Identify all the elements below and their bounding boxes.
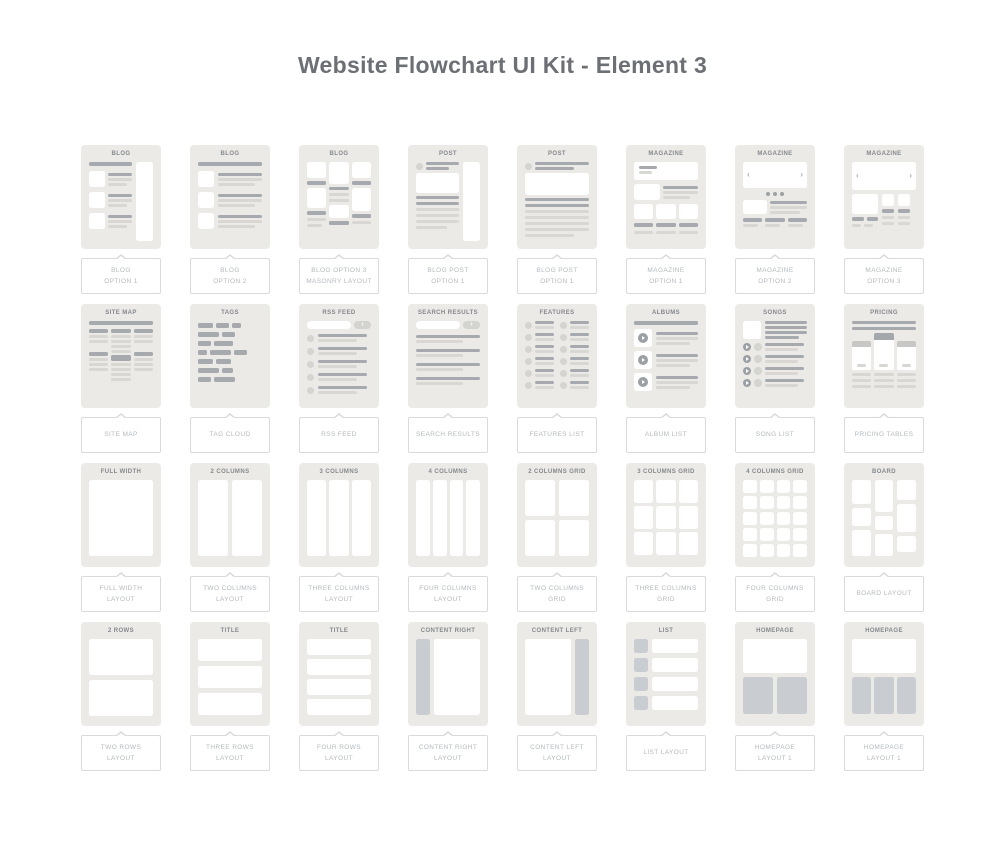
card-homepage-layout-1-a: HOMEPAGE HOMEPAGE LAYOUT 1 (735, 622, 815, 771)
card-label-text: FULL WIDTH LAYOUT (100, 583, 143, 605)
thumbnail-title: ALBUMS (634, 304, 698, 321)
card-full-width-layout: FULL WIDTH FULL WIDTH LAYOUT (81, 463, 161, 612)
arrow-button-icon: › (463, 321, 480, 329)
thumbnail-title: PRICING (852, 304, 916, 321)
wireframe-graphic (198, 639, 262, 718)
play-icon (638, 377, 648, 387)
card-four-columns-layout: 4 COLUMNS FOUR COLUMNS LAYOUT (408, 463, 488, 612)
carousel-dots (743, 192, 807, 196)
wireframe-graphic: › (416, 321, 480, 400)
wireframe-graphic (743, 480, 807, 559)
card-content-left-layout: CONTENT LEFT CONTENT LEFT LAYOUT (517, 622, 597, 771)
wireframe-thumbnail: ALBUMS (626, 304, 706, 408)
wireframe-thumbnail: MAGAZINE ‹› (735, 145, 815, 249)
thumbnail-title: RSS FEED (307, 304, 371, 321)
wireframe-thumbnail: BLOG (299, 145, 379, 249)
card-label: SONG LIST (735, 417, 815, 453)
card-two-columns-grid: 2 COLUMNS GRID TWO COLUMNS GRID (517, 463, 597, 612)
wireframe-graphic (416, 639, 480, 718)
card-blog-post-option-1-full: POST BLOG POST OPTION 1 (517, 145, 597, 294)
card-label-text: PRICING TABLES (855, 429, 914, 440)
card-blog-post-option-1-sidebar: POST BLOG POST OPTION 1 (408, 145, 488, 294)
play-icon (638, 355, 648, 365)
card-magazine-option-1: MAGAZINE MAGAZINE OPTION 1 (626, 145, 706, 294)
card-label: FEATURES LIST (517, 417, 597, 453)
wireframe-thumbnail: SITE MAP (81, 304, 161, 408)
card-two-columns-layout: 2 COLUMNS TWO COLUMNS LAYOUT (190, 463, 270, 612)
card-label-text: ALBUM LIST (645, 429, 687, 440)
card-label: RSS FEED (299, 417, 379, 453)
thumbnail-title: TAGS (198, 304, 262, 321)
avatar (416, 163, 423, 170)
wireframe-graphic (634, 162, 698, 241)
thumbnail-title: BOARD (852, 463, 916, 480)
wireframe-thumbnail: POST (408, 145, 488, 249)
card-label-text: SEARCH RESULTS (416, 429, 480, 440)
card-label: BLOG POST OPTION 1 (517, 258, 597, 294)
thumbnail-title: FEATURES (525, 304, 589, 321)
card-label: TWO ROWS LAYOUT (81, 735, 161, 771)
card-three-columns-grid: 3 COLUMNS GRID THREE COLUMNS GRID (626, 463, 706, 612)
thumbnail-title: BLOG (198, 145, 262, 162)
card-label: HOMEPAGE LAYOUT 1 (735, 735, 815, 771)
card-label-text: BLOG OPTION 3 MASONRY LAYOUT (306, 265, 372, 287)
wireframe-graphic (525, 480, 589, 559)
card-label-text: MAGAZINE OPTION 1 (647, 265, 684, 287)
thumbnail-title: 4 COLUMNS (416, 463, 480, 480)
card-label-text: CONTENT RIGHT LAYOUT (419, 742, 478, 764)
card-label: BLOG OPTION 2 (190, 258, 270, 294)
wireframe-graphic (198, 321, 262, 402)
wireframe-thumbnail: HOMEPAGE (735, 622, 815, 726)
thumbnail-title: 2 COLUMNS GRID (525, 463, 589, 480)
card-label-text: BLOG OPTION 1 (104, 265, 138, 287)
wireframe-graphic (525, 162, 589, 241)
wireframe-thumbnail: SEARCH RESULTS › (408, 304, 488, 408)
wireframe-thumbnail: 2 COLUMNS (190, 463, 270, 567)
card-label: FOUR COLUMNS GRID (735, 576, 815, 612)
card-board-layout: BOARD BOARD LAYOUT (844, 463, 924, 612)
card-song-list: SONGS SONG LIST (735, 304, 815, 453)
wireframe-thumbnail: TITLE (190, 622, 270, 726)
card-label-text: FOUR COLUMNS GRID (746, 583, 804, 605)
thumbnail-title: SITE MAP (89, 304, 153, 321)
thumbnail-title: MAGAZINE (743, 145, 807, 162)
thumbnail-title: 2 COLUMNS (198, 463, 262, 480)
card-homepage-layout-1-b: HOMEPAGE HOMEPAGE LAYOUT 1 (844, 622, 924, 771)
card-label: CONTENT RIGHT LAYOUT (408, 735, 488, 771)
wireframe-thumbnail: MAGAZINE ‹› (844, 145, 924, 249)
wireframe-thumbnail: BLOG (81, 145, 161, 249)
wireframe-thumbnail: BOARD (844, 463, 924, 567)
card-label-text: TWO ROWS LAYOUT (101, 742, 141, 764)
chevron-right-icon: › (800, 171, 803, 179)
play-icon (638, 333, 648, 343)
card-label-text: TWO COLUMNS LAYOUT (203, 583, 257, 605)
play-icon (743, 367, 751, 375)
thumbnail-title: CONTENT RIGHT (416, 622, 480, 639)
chevron-left-icon: ‹ (747, 171, 750, 179)
thumbnail-title: POST (416, 145, 480, 162)
wireframe-thumbnail: 4 COLUMNS (408, 463, 488, 567)
wireframe-thumbnail: 3 COLUMNS GRID (626, 463, 706, 567)
card-label: THREE COLUMNS GRID (626, 576, 706, 612)
card-label: BLOG OPTION 3 MASONRY LAYOUT (299, 258, 379, 294)
card-label-text: SITE MAP (104, 429, 138, 440)
wireframe-graphic (852, 639, 916, 718)
card-label: FOUR COLUMNS LAYOUT (408, 576, 488, 612)
card-list-layout: LIST LIST LAYOUT (626, 622, 706, 771)
wireframe-graphic (416, 162, 480, 241)
thumbnail-title: BLOG (307, 145, 371, 162)
card-label-text: THREE ROWS LAYOUT (206, 742, 254, 764)
search-input (416, 321, 460, 329)
card-label-text: HOMEPAGE LAYOUT 1 (864, 742, 904, 764)
card-label-text: LIST LAYOUT (643, 747, 688, 758)
wireframe-graphic (89, 162, 153, 241)
wireframe-thumbnail: POST (517, 145, 597, 249)
thumbnail-title: FULL WIDTH (89, 463, 153, 480)
chevron-right-icon: › (909, 172, 912, 180)
card-magazine-option-2: MAGAZINE ‹› MAGAZINE OPTION 2 (735, 145, 815, 294)
card-magazine-option-3: MAGAZINE ‹› MAGAZINE OPTION 3 (844, 145, 924, 294)
card-label: BLOG POST OPTION 1 (408, 258, 488, 294)
wireframe-thumbnail: 2 ROWS (81, 622, 161, 726)
card-label-text: BLOG POST OPTION 1 (427, 265, 468, 287)
card-label-text: FEATURES LIST (530, 429, 585, 440)
wireframe-graphic (89, 321, 153, 400)
card-label-text: THREE COLUMNS GRID (635, 583, 697, 605)
card-label: MAGAZINE OPTION 1 (626, 258, 706, 294)
wireframe-graphic (307, 480, 371, 559)
card-label: BLOG OPTION 1 (81, 258, 161, 294)
thumbnail-title: BLOG (89, 145, 153, 162)
card-label: MAGAZINE OPTION 3 (844, 258, 924, 294)
card-label: FULL WIDTH LAYOUT (81, 576, 161, 612)
thumbnail-title: 3 COLUMNS (307, 463, 371, 480)
card-label: LIST LAYOUT (626, 735, 706, 771)
wireframe-thumbnail: BLOG (190, 145, 270, 249)
thumbnail-title: LIST (634, 622, 698, 639)
play-icon (743, 379, 751, 387)
wireframe-graphic (307, 639, 371, 718)
card-two-rows-layout: 2 ROWS TWO ROWS LAYOUT (81, 622, 161, 771)
wireframe-graphic (416, 480, 480, 559)
wireframe-thumbnail: 2 COLUMNS GRID (517, 463, 597, 567)
card-label: TAG CLOUD (190, 417, 270, 453)
wireframe-graphic (743, 639, 807, 718)
wireframe-graphic (89, 480, 153, 559)
card-three-columns-layout: 3 COLUMNS THREE COLUMNS LAYOUT (299, 463, 379, 612)
wireframe-thumbnail: RSS FEED › (299, 304, 379, 408)
wireframe-graphic (852, 321, 916, 400)
card-label: CONTENT LEFT LAYOUT (517, 735, 597, 771)
search-input (307, 321, 351, 329)
wireframe-thumbnail: CONTENT LEFT (517, 622, 597, 726)
card-label-text: MAGAZINE OPTION 2 (756, 265, 793, 287)
wireframe-thumbnail: FEATURES (517, 304, 597, 408)
card-four-rows-layout: TITLE FOUR ROWS LAYOUT (299, 622, 379, 771)
wireframe-thumbnail: MAGAZINE (626, 145, 706, 249)
card-features-list: FEATURES FEATURES LIST (517, 304, 597, 453)
thumbnail-title: SEARCH RESULTS (416, 304, 480, 321)
wireframe-graphic (634, 321, 698, 400)
card-label-text: SONG LIST (756, 429, 794, 440)
card-album-list: ALBUMS ALBUM LIST (626, 304, 706, 453)
card-rss-feed: RSS FEED › RSS FEED (299, 304, 379, 453)
wireframe-thumbnail: CONTENT RIGHT (408, 622, 488, 726)
chevron-left-icon: ‹ (856, 172, 859, 180)
wireframe-graphic (852, 480, 916, 559)
card-pricing-tables: PRICING PRICING TABLES (844, 304, 924, 453)
card-label-text: FOUR COLUMNS LAYOUT (419, 583, 477, 605)
card-label: BOARD LAYOUT (844, 576, 924, 612)
wireframe-graphic (525, 639, 589, 718)
card-four-columns-grid: 4 COLUMNS GRID FOUR COLUMNS GRID (735, 463, 815, 612)
wireframe-thumbnail: LIST (626, 622, 706, 726)
wireframe-graphic (634, 480, 698, 559)
card-blog-option-3-masonry: BLOG BLOG OPTION 3 MASONRY LAYOUT (299, 145, 379, 294)
wireframe-graphic: ‹› (743, 162, 807, 241)
card-site-map: SITE MAP SITE MAP (81, 304, 161, 453)
card-label: ALBUM LIST (626, 417, 706, 453)
card-label-text: HOMEPAGE LAYOUT 1 (755, 742, 795, 764)
thumbnail-title: MAGAZINE (852, 145, 916, 162)
thumbnail-title: POST (525, 145, 589, 162)
card-label: THREE ROWS LAYOUT (190, 735, 270, 771)
card-search-results: SEARCH RESULTS › SEARCH RESULTS (408, 304, 488, 453)
card-label-text: RSS FEED (321, 429, 357, 440)
card-label-text: TAG CLOUD (209, 429, 250, 440)
wireframe-thumbnail: HOMEPAGE (844, 622, 924, 726)
card-tag-cloud: TAGS TAG CLOUD (190, 304, 270, 453)
wireframe-graphic (198, 162, 262, 241)
card-label: THREE COLUMNS LAYOUT (299, 576, 379, 612)
card-label-text: BOARD LAYOUT (856, 588, 911, 599)
card-label: SITE MAP (81, 417, 161, 453)
card-label: HOMEPAGE LAYOUT 1 (844, 735, 924, 771)
card-blog-option-1: BLOG BLOG OPTION 1 (81, 145, 161, 294)
play-icon (743, 355, 751, 363)
wireframe-thumbnail: TITLE (299, 622, 379, 726)
thumbnail-title: MAGAZINE (634, 145, 698, 162)
card-blog-option-2: BLOG BLOG OPTION 2 (190, 145, 270, 294)
wireframe-graphic (198, 480, 262, 559)
wireframe-thumbnail: 4 COLUMNS GRID (735, 463, 815, 567)
arrow-button-icon: › (354, 321, 371, 329)
thumbnail-title: HOMEPAGE (852, 622, 916, 639)
page-title: Website Flowchart UI Kit - Element 3 (0, 52, 1005, 79)
card-label-text: MAGAZINE OPTION 3 (865, 265, 902, 287)
thumbnail-title: TITLE (307, 622, 371, 639)
wireframe-thumbnail: FULL WIDTH (81, 463, 161, 567)
wireframe-thumbnail: SONGS (735, 304, 815, 408)
wireframe-graphic (743, 321, 807, 400)
wireframe-graphic (634, 639, 698, 718)
card-three-rows-layout: TITLE THREE ROWS LAYOUT (190, 622, 270, 771)
play-icon (743, 343, 751, 351)
card-label: TWO COLUMNS GRID (517, 576, 597, 612)
card-label: MAGAZINE OPTION 2 (735, 258, 815, 294)
wireframe-graphic (525, 321, 589, 400)
card-label-text: THREE COLUMNS LAYOUT (308, 583, 370, 605)
card-label: SEARCH RESULTS (408, 417, 488, 453)
card-label-text: BLOG OPTION 2 (213, 265, 247, 287)
wireframe-graphic: › (307, 321, 371, 400)
card-label-text: CONTENT LEFT LAYOUT (530, 742, 584, 764)
wireframe-thumbnail: 3 COLUMNS (299, 463, 379, 567)
wireframe-graphic: ‹› (852, 162, 916, 241)
wireframe-thumbnail: PRICING (844, 304, 924, 408)
card-label: FOUR ROWS LAYOUT (299, 735, 379, 771)
wireframe-graphic (307, 162, 371, 241)
avatar (525, 163, 532, 170)
card-label-text: BLOG POST OPTION 1 (536, 265, 577, 287)
thumbnail-title: 2 ROWS (89, 622, 153, 639)
card-label-text: TWO COLUMNS GRID (530, 583, 584, 605)
card-content-right-layout: CONTENT RIGHT CONTENT RIGHT LAYOUT (408, 622, 488, 771)
thumbnail-title: 4 COLUMNS GRID (743, 463, 807, 480)
thumbnail-title: TITLE (198, 622, 262, 639)
thumbnail-title: SONGS (743, 304, 807, 321)
card-label: TWO COLUMNS LAYOUT (190, 576, 270, 612)
card-label-text: FOUR ROWS LAYOUT (317, 742, 361, 764)
thumbnail-title: HOMEPAGE (743, 622, 807, 639)
thumbnail-title: CONTENT LEFT (525, 622, 589, 639)
wireframe-thumbnail: TAGS (190, 304, 270, 408)
card-label: PRICING TABLES (844, 417, 924, 453)
thumbnail-title: 3 COLUMNS GRID (634, 463, 698, 480)
cards-grid: BLOG BLOG OPTION 1 BLOG BL (81, 145, 924, 771)
wireframe-graphic (89, 639, 153, 718)
